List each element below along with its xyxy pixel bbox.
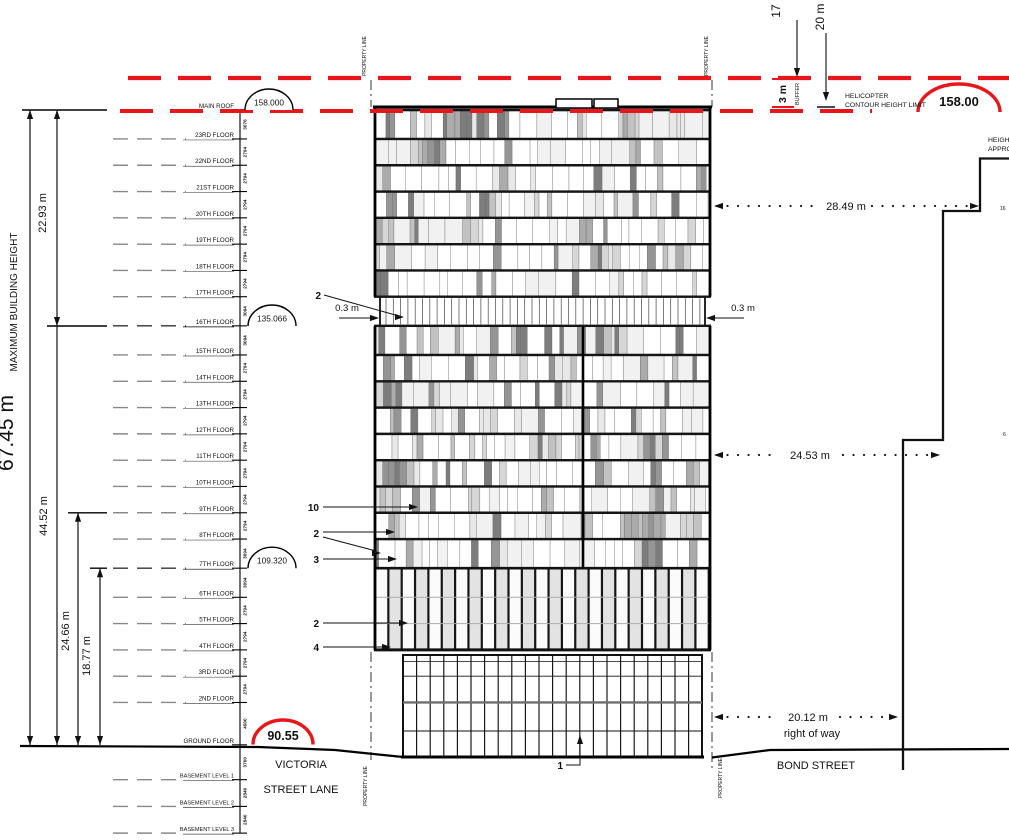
- podium-cell: [589, 568, 602, 650]
- facade-panel: [591, 245, 598, 270]
- facade-panel: [462, 271, 477, 296]
- podium-cell: [522, 568, 535, 650]
- floor-label-3rd-floor: 3RD FLOOR: [199, 669, 235, 676]
- facade-panel: [579, 271, 596, 296]
- facade-panel: [652, 111, 669, 138]
- facade-panel: [608, 245, 613, 270]
- facade-panel: [430, 327, 438, 355]
- floor-label-12th-floor: 12TH FLOOR: [196, 427, 235, 434]
- facade-panel: [604, 327, 611, 355]
- facade-panel: [466, 111, 472, 138]
- facade-panel: [392, 487, 400, 512]
- facade-panel: [446, 461, 450, 486]
- facade-panel: [637, 382, 653, 407]
- facade-panel: [691, 245, 702, 270]
- facade-panel: [509, 111, 520, 138]
- property-line-label-top-right: PROPERTY LINE: [704, 35, 710, 75]
- facade-panel: [524, 193, 534, 218]
- facade-panel: [546, 461, 556, 486]
- facade-panel: [460, 540, 472, 568]
- level-floor-7: 109.320: [257, 556, 287, 566]
- facade-panel: [639, 111, 652, 138]
- facade-panel: [505, 356, 520, 381]
- podium-cell: [642, 568, 655, 650]
- facade-panel: [664, 356, 672, 381]
- facade-panel: [465, 356, 473, 381]
- facade-panel: [567, 382, 571, 407]
- facade-panel: [624, 514, 631, 539]
- facade-panel: [538, 140, 551, 165]
- facade-panel: [680, 382, 693, 407]
- rooftop-box: [556, 99, 592, 108]
- facade-panel: [451, 435, 455, 460]
- facade-panel: [542, 245, 554, 270]
- dim-arrow: [714, 203, 723, 209]
- facade-panel: [622, 219, 629, 244]
- dim-arrow: [370, 315, 379, 321]
- facade-panel: [419, 514, 428, 539]
- facade-panel: [489, 193, 495, 218]
- podium-cell: [615, 568, 628, 650]
- facade-panel: [516, 166, 531, 191]
- facade-panel: [604, 219, 608, 244]
- facade-panel: [483, 219, 495, 244]
- facade-panel: [472, 111, 477, 138]
- facade-panel: [585, 514, 593, 539]
- facade-panel: [435, 487, 450, 512]
- facade-panel: [514, 409, 521, 434]
- facade-panel: [375, 409, 390, 434]
- facade-panel: [619, 111, 623, 138]
- facade-panel: [661, 409, 666, 434]
- facade-panel: [547, 487, 554, 512]
- helicopter-caption-1: HELICOPTER: [845, 93, 889, 100]
- facade-panel: [521, 327, 528, 355]
- facade-panel: [536, 166, 553, 191]
- floor-dim-2794: 2794: [243, 415, 248, 426]
- facade-panel: [497, 111, 504, 138]
- facade-panel: [458, 409, 464, 434]
- callout-2: 2: [313, 529, 319, 540]
- building-elevation-drawing: MAIN ROOF307623RD FLOOR279422ND FLOOR279…: [0, 0, 1009, 840]
- facade-panel: [404, 356, 412, 381]
- facade-panel: [695, 487, 706, 512]
- facade-panel: [696, 435, 710, 460]
- facade-panel: [411, 409, 418, 434]
- facade-panel: [662, 461, 674, 486]
- facade-panel: [495, 219, 501, 244]
- facade-panel: [484, 409, 491, 434]
- facade-panel: [593, 219, 604, 244]
- facade-panel: [410, 140, 418, 165]
- facade-panel: [658, 166, 663, 191]
- facade-panel: [664, 487, 671, 512]
- podium-cell: [602, 568, 615, 650]
- ground-line-left: [20, 746, 403, 757]
- facade-panel: [551, 140, 566, 165]
- facade-panel: [445, 219, 463, 244]
- podium-cell: [655, 568, 668, 650]
- facade-panel: [463, 219, 471, 244]
- facade-panel: [615, 327, 619, 355]
- facade-panel: [406, 327, 417, 355]
- facade-panel: [493, 245, 501, 270]
- facade-panel: [500, 540, 508, 568]
- facade-panel: [697, 140, 710, 165]
- facade-panel: [391, 356, 395, 381]
- facade-panel: [465, 409, 480, 434]
- street-victoria-line1: VICTORIA: [275, 759, 327, 771]
- elevation-sheet: MAIN ROOF307623RD FLOOR279422ND FLOOR279…: [0, 0, 1009, 840]
- facade-panel: [532, 487, 541, 512]
- facade-panel: [630, 166, 636, 191]
- dim-arrow: [75, 736, 81, 745]
- facade-panel: [556, 435, 562, 460]
- facade-panel: [665, 382, 669, 407]
- neighbor-tag-upper: 16: [1000, 206, 1006, 212]
- facade-panel: [602, 166, 615, 191]
- dim-arrow: [714, 714, 723, 720]
- facade-panel: [425, 111, 432, 138]
- facade-panel: [683, 245, 691, 270]
- facade-panel: [533, 219, 550, 244]
- facade-panel: [386, 487, 393, 512]
- facade-panel: [552, 514, 563, 539]
- facade-panel: [679, 193, 696, 218]
- facade-panel: [611, 356, 623, 381]
- facade-panel: [492, 271, 496, 296]
- facade-panel: [452, 409, 459, 434]
- podium-cell: [468, 568, 481, 650]
- facade-panel: [682, 435, 696, 460]
- facade-panel: [691, 487, 695, 512]
- facade-panel: [555, 382, 562, 407]
- floor-dim-3094: 3094: [243, 548, 248, 559]
- facade-panel: [563, 514, 581, 539]
- podium-cell: [442, 568, 455, 650]
- callout-2: 2: [315, 291, 321, 302]
- facade-panel: [498, 327, 511, 355]
- facade-panel: [395, 245, 412, 270]
- facade-panel: [624, 271, 633, 296]
- facade-panel: [693, 382, 710, 407]
- facade-panel: [568, 193, 584, 218]
- facade-panel: [496, 193, 502, 218]
- facade-panel: [477, 382, 494, 407]
- facade-panel: [640, 245, 648, 270]
- facade-panel: [486, 193, 490, 218]
- helicopter-level-value: 158.00: [939, 94, 979, 109]
- facade-panel: [413, 540, 422, 568]
- facade-panel: [422, 140, 428, 165]
- facade-panel: [470, 140, 481, 165]
- facade-panel: [386, 193, 392, 218]
- facade-panel: [375, 111, 386, 138]
- facade-panel: [560, 327, 564, 355]
- facade-panel: [480, 409, 484, 434]
- facade-panel: [619, 327, 627, 355]
- facade-panel: [382, 219, 388, 244]
- facade-panel: [395, 540, 406, 568]
- facade-panel: [511, 382, 520, 407]
- dim-arrow: [97, 736, 103, 745]
- facade-panel: [664, 219, 675, 244]
- facade-panel: [651, 461, 656, 486]
- facade-panel: [398, 271, 407, 296]
- facade-panel: [561, 409, 573, 434]
- facade-panel: [414, 382, 429, 407]
- callout-10: 10: [308, 503, 320, 514]
- dim-17: 17: [769, 4, 783, 18]
- facade-panel: [415, 219, 419, 244]
- facade-panel: [443, 111, 447, 138]
- floor-label-main-roof: MAIN ROOF: [199, 103, 234, 110]
- facade-panel: [545, 409, 562, 434]
- facade-panel: [677, 487, 691, 512]
- facade-panel: [642, 271, 647, 296]
- facade-panel: [685, 111, 703, 138]
- facade-panel: [388, 140, 396, 165]
- dim-arrow: [54, 317, 60, 326]
- floor-dim-2794: 2794: [243, 494, 248, 505]
- facade-panel: [492, 461, 500, 486]
- facade-panel: [647, 245, 655, 270]
- facade-panel: [470, 514, 476, 539]
- facade-panel: [519, 461, 531, 486]
- facade-panel: [693, 271, 697, 296]
- facade-panel: [494, 435, 505, 460]
- facade-panel: [379, 327, 385, 355]
- facade-panel: [482, 271, 491, 296]
- facade-panel: [394, 356, 404, 381]
- floor-dim-2840: 2840: [243, 814, 248, 825]
- facade-panel: [497, 356, 505, 381]
- facade-panel: [410, 111, 416, 138]
- facade-panel: [375, 435, 392, 460]
- dim-20m: 20 m: [813, 4, 827, 31]
- facade-panel: [493, 514, 501, 539]
- facade-panel: [448, 166, 456, 191]
- floor-dim-2794: 2794: [243, 252, 248, 263]
- dim-arrow: [889, 714, 898, 720]
- level-ground: 90.55: [267, 729, 298, 743]
- podium-cell: [509, 568, 522, 650]
- facade-panel: [429, 219, 445, 244]
- property-line-label-bottom-left: PROPERTY LINE: [363, 765, 369, 805]
- facade-panel: [539, 461, 546, 486]
- facade-panel: [623, 111, 627, 138]
- facade-panel: [638, 435, 644, 460]
- floor-dim-3094: 3094: [243, 335, 248, 346]
- facade-panel: [412, 245, 426, 270]
- facade-panel: [455, 111, 460, 138]
- facade-panel: [539, 271, 556, 296]
- facade-panel: [424, 193, 434, 218]
- facade-panel: [530, 245, 542, 270]
- facade-panel: [657, 193, 672, 218]
- dim-18-77: 18.77 m: [81, 636, 93, 676]
- facade-panel: [677, 111, 681, 138]
- facade-panel: [653, 382, 665, 407]
- floor-label-15th-floor: 15TH FLOOR: [196, 348, 235, 355]
- facade-panel: [389, 219, 394, 244]
- facade-panel: [472, 487, 480, 512]
- facade-panel: [450, 245, 467, 270]
- facade-panel: [599, 140, 612, 165]
- podium-cell: [388, 568, 401, 650]
- floor-label-7th-floor: 7TH FLOOR: [199, 561, 234, 568]
- facade-panel: [480, 487, 489, 512]
- facade-panel: [456, 166, 461, 191]
- facade-panel: [380, 487, 386, 512]
- facade-panel: [388, 461, 395, 486]
- facade-panel: [631, 514, 638, 539]
- facade-panel: [535, 382, 539, 407]
- callout-1: 1: [557, 761, 563, 772]
- facade-panel: [697, 327, 710, 355]
- facade-panel: [390, 166, 405, 191]
- setback-left: 0.3 m: [335, 303, 359, 314]
- facade-panel: [677, 271, 693, 296]
- facade-panel: [598, 409, 605, 434]
- facade-panel: [631, 409, 636, 434]
- facade-panel: [484, 461, 491, 486]
- facade-panel: [642, 514, 649, 539]
- floor-dim-2794: 2794: [243, 146, 248, 157]
- floor-label-2nd-floor: 2ND FLOOR: [199, 695, 235, 702]
- dim-arrow: [27, 110, 33, 119]
- facade-panel: [605, 409, 614, 434]
- floor-label-18th-floor: 18TH FLOOR: [196, 263, 235, 270]
- podium-cell: [562, 568, 575, 650]
- facade-panel: [594, 166, 602, 191]
- facade-panel: [440, 140, 446, 165]
- neighbor-caption-1: HEIGH: [988, 137, 1009, 144]
- facade-panel: [471, 193, 480, 218]
- podium-cell: [482, 568, 495, 650]
- buffer-caption: BUFFER: [795, 83, 801, 105]
- helicopter-caption-2: CONTOUR HEIGHT LIMIT: [845, 102, 926, 109]
- facade-panel: [389, 514, 395, 539]
- dim-22-93: 22.93 m: [37, 193, 49, 233]
- floor-label-21st-floor: 21ST FLOOR: [196, 185, 234, 192]
- facade-panel: [640, 140, 654, 165]
- podium-cell: [629, 568, 642, 650]
- dim-arrow: [794, 68, 800, 77]
- facade-panel: [567, 111, 577, 138]
- facade-panel: [439, 435, 451, 460]
- facade-panel: [511, 327, 516, 355]
- facade-panel: [517, 487, 532, 512]
- podium-cell: [535, 568, 548, 650]
- facade-panel: [577, 111, 582, 138]
- facade-panel: [545, 327, 552, 355]
- facade-panel: [590, 409, 598, 434]
- podium-cell: [669, 568, 682, 650]
- facade-panel: [550, 540, 565, 568]
- facade-panel: [619, 271, 624, 296]
- facade-panel: [623, 356, 640, 381]
- facade-panel: [603, 382, 621, 407]
- facade-panel: [534, 540, 550, 568]
- facade-panel: [644, 327, 661, 355]
- facade-panel: [634, 540, 642, 568]
- dim-44-52: 44.52 m: [38, 496, 50, 536]
- facade-panel: [527, 356, 537, 381]
- floor-dim-2794: 2794: [243, 684, 248, 695]
- floor-dim-4500: 4500: [243, 718, 248, 729]
- facade-panel: [680, 514, 686, 539]
- facade-panel: [489, 111, 497, 138]
- facade-panel: [420, 461, 433, 486]
- floor-label-14th-floor: 14TH FLOOR: [196, 374, 235, 381]
- dim-arrow: [75, 513, 81, 522]
- floor-dim-2794: 2794: [243, 199, 248, 210]
- facade-panel: [455, 140, 469, 165]
- facade-panel: [434, 193, 449, 218]
- facade-panel: [502, 193, 509, 218]
- facade-panel: [477, 271, 482, 296]
- floor-label-basement-level-2: BASEMENT LEVEL 2: [180, 800, 234, 806]
- facade-panel: [386, 111, 390, 138]
- facade-panel: [507, 487, 517, 512]
- facade-panel: [579, 245, 591, 270]
- facade-panel: [621, 382, 637, 407]
- facade-panel: [537, 111, 552, 138]
- floor-dim-3094: 3094: [243, 306, 248, 317]
- facade-panel: [629, 219, 641, 244]
- facade-panel: [476, 514, 493, 539]
- facade-panel: [556, 271, 572, 296]
- facade-panel: [641, 409, 653, 434]
- facade-panel: [500, 461, 507, 486]
- facade-panel: [590, 140, 599, 165]
- rooftop-box: [594, 99, 618, 108]
- facade-panel: [490, 327, 498, 355]
- neighbor-caption-2: APPRO: [988, 146, 1009, 153]
- facade-panel: [557, 461, 573, 486]
- facade-panel: [439, 166, 448, 191]
- facade-panel: [642, 540, 648, 568]
- floor-dim-3094: 3094: [243, 577, 248, 588]
- facade-panel: [620, 487, 632, 512]
- max-height-value: 67.45 m: [0, 395, 18, 471]
- facade-panel: [449, 193, 466, 218]
- facade-panel: [478, 219, 483, 244]
- facade-panel: [558, 245, 573, 270]
- facade-panel: [447, 540, 460, 568]
- setback-right: 0.3 m: [731, 303, 755, 314]
- facade-panel: [538, 409, 544, 434]
- facade-panel: [398, 435, 412, 460]
- facade-panel: [508, 166, 516, 191]
- facade-panel: [614, 193, 618, 218]
- facade-panel: [678, 356, 693, 381]
- facade-panel: [636, 409, 641, 434]
- facade-panel: [654, 140, 662, 165]
- facade-panel: [562, 435, 576, 460]
- facade-panel: [700, 461, 709, 486]
- facade-panel: [549, 356, 555, 381]
- facade-panel: [681, 166, 696, 191]
- dim-arrow: [27, 736, 33, 745]
- facade-panel: [583, 166, 593, 191]
- facade-panel: [612, 140, 630, 165]
- level-main-roof: 158.000: [254, 98, 284, 108]
- facade-panel: [636, 140, 641, 165]
- facade-panel: [494, 140, 505, 165]
- facade-panel: [644, 461, 651, 486]
